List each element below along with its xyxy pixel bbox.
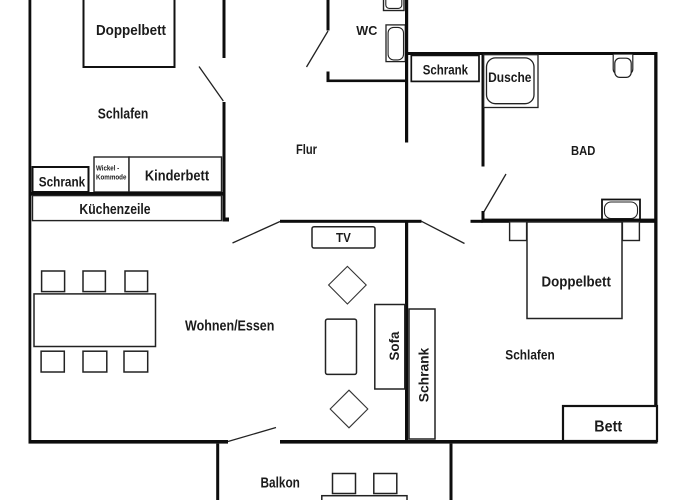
svg-text:Schrank: Schrank: [416, 348, 432, 403]
svg-text:Doppelbett: Doppelbett: [542, 274, 612, 290]
svg-text:Doppelbett: Doppelbett: [96, 23, 166, 39]
svg-text:Schlafen: Schlafen: [98, 106, 149, 122]
svg-text:Kommode: Kommode: [96, 172, 126, 181]
svg-text:Flur: Flur: [296, 142, 318, 157]
svg-text:Dusche: Dusche: [488, 69, 532, 85]
svg-text:BAD: BAD: [571, 144, 595, 158]
svg-text:Schrank: Schrank: [423, 63, 469, 78]
svg-text:Wohnen/Essen: Wohnen/Essen: [185, 318, 274, 335]
svg-text:Schlafen: Schlafen: [505, 347, 554, 363]
svg-text:Küchenzeile: Küchenzeile: [79, 202, 150, 218]
svg-text:WC: WC: [356, 24, 377, 38]
svg-text:Balkon: Balkon: [261, 475, 300, 492]
svg-text:Sofa: Sofa: [386, 331, 402, 360]
svg-text:TV: TV: [336, 231, 351, 245]
svg-text:Kinderbett: Kinderbett: [145, 169, 209, 185]
svg-text:Bett: Bett: [594, 418, 622, 435]
svg-text:Wickel -: Wickel -: [96, 164, 120, 173]
svg-text:Schrank: Schrank: [39, 174, 86, 190]
